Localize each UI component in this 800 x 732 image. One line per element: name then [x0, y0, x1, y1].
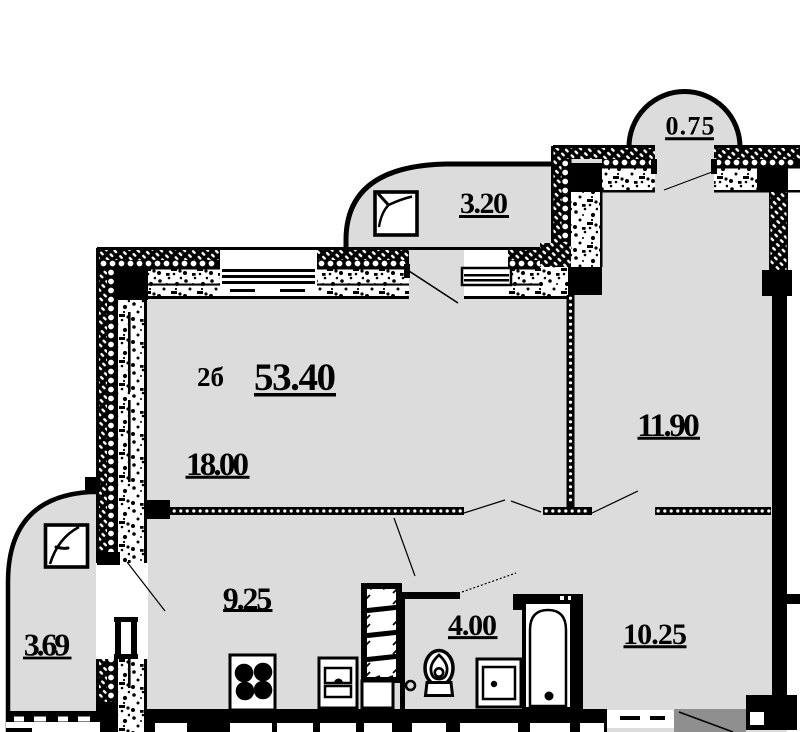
- svg-text:0.75: 0.75: [666, 112, 715, 141]
- svg-text:53.40: 53.40: [254, 356, 336, 399]
- svg-text:2б: 2б: [197, 362, 224, 392]
